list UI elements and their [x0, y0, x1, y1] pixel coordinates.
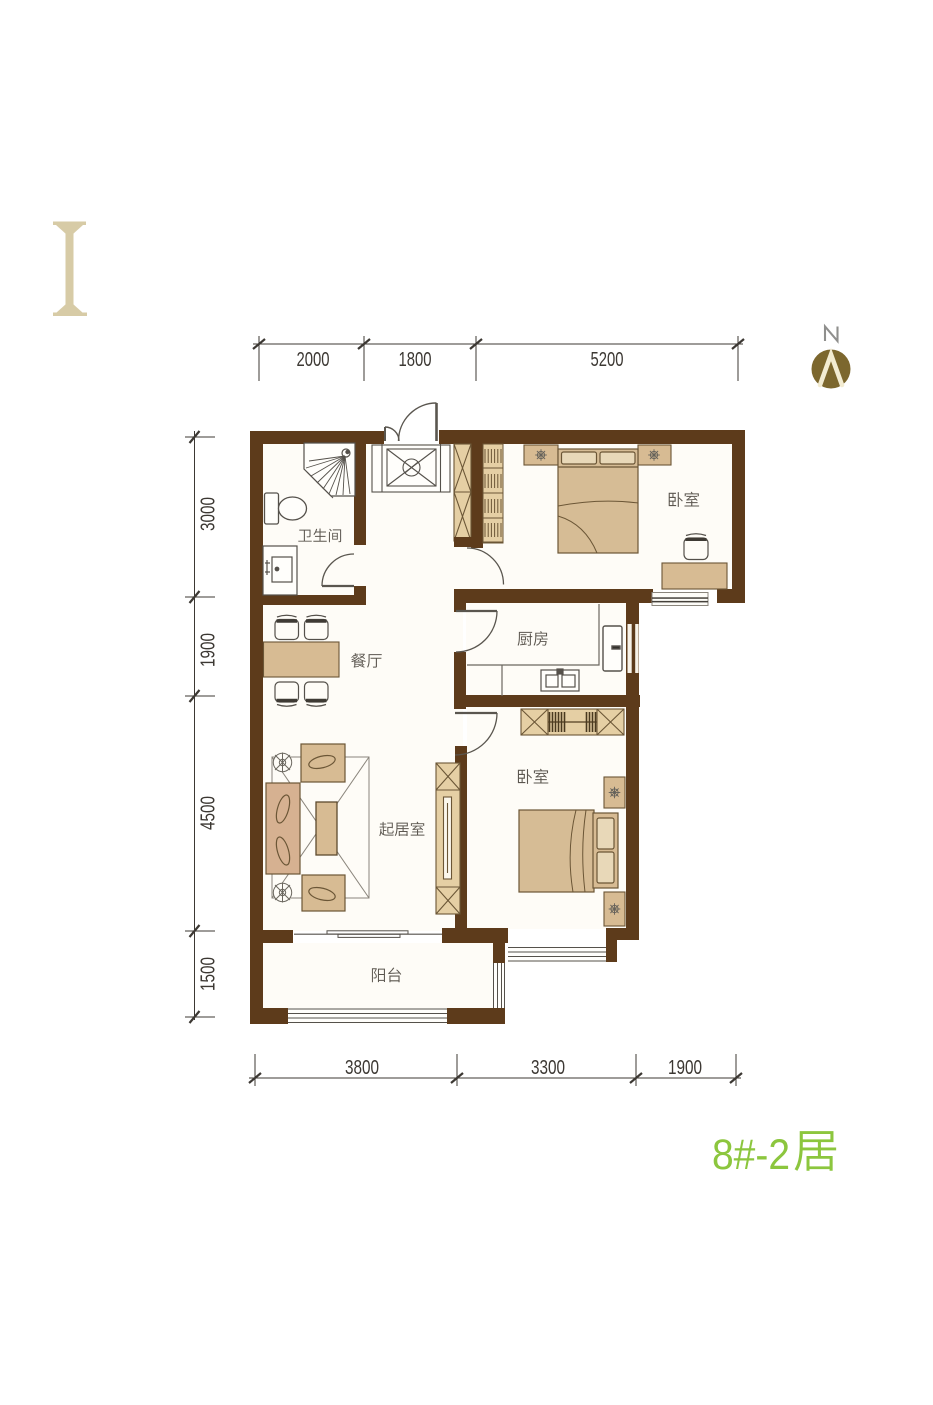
svg-text:5200: 5200 [591, 349, 624, 371]
svg-text:4500: 4500 [198, 796, 220, 830]
svg-text:2000: 2000 [297, 349, 330, 371]
svg-text:1900: 1900 [668, 1057, 702, 1079]
svg-text:3300: 3300 [531, 1057, 565, 1079]
svg-text:1900: 1900 [198, 633, 220, 667]
svg-text:1800: 1800 [399, 349, 432, 371]
svg-text:8#-2: 8#-2 [712, 1131, 790, 1179]
svg-text:3000: 3000 [198, 497, 220, 531]
svg-text:3800: 3800 [345, 1057, 379, 1079]
svg-text:1500: 1500 [198, 957, 220, 991]
